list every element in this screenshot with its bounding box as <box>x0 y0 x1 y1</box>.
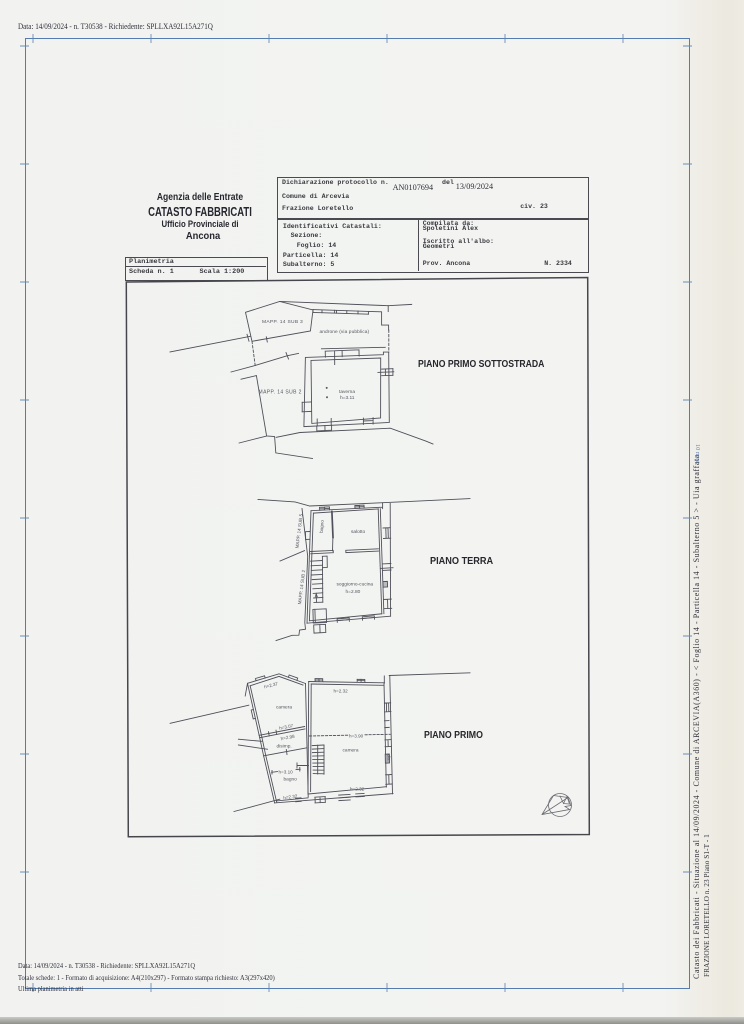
svg-text:androne (via pubblica): androne (via pubblica) <box>320 329 370 335</box>
svg-text:MAPP. 14 SUB 3: MAPP. 14 SUB 3 <box>262 319 303 325</box>
svg-text:MAPP. 14 SUB 5: MAPP. 14 SUB 5 <box>295 513 304 548</box>
svg-text:bagno: bagno <box>284 777 298 783</box>
svg-text:salotto: salotto <box>351 529 365 535</box>
svg-text:h=3.10: h=3.10 <box>279 770 294 775</box>
svg-text:MAPP. 14 SUB 2: MAPP. 14 SUB 2 <box>297 569 306 604</box>
svg-text:bagno: bagno <box>319 520 325 534</box>
svg-text:disimp.: disimp. <box>277 744 292 750</box>
svg-text:soggiorno-cucina: soggiorno-cucina <box>337 582 374 588</box>
svg-text:h=2.32: h=2.32 <box>334 689 349 694</box>
svg-text:h=2.32: h=2.32 <box>350 787 365 792</box>
svg-text:h=3.07: h=3.07 <box>279 723 294 731</box>
svg-text:taverna: taverna <box>339 389 355 395</box>
svg-text:h=3.11: h=3.11 <box>340 395 355 401</box>
svg-text:h=2.80: h=2.80 <box>346 589 361 595</box>
svg-text:h=2.37: h=2.37 <box>264 681 279 689</box>
svg-text:camera: camera <box>276 705 292 711</box>
svg-text:camera: camera <box>343 748 359 754</box>
svg-text:MAPP. 14 SUB 2: MAPP. 14 SUB 2 <box>259 390 302 396</box>
svg-text:dis.: dis. <box>387 754 392 761</box>
svg-text:h=2.98: h=2.98 <box>280 734 295 742</box>
svg-text:h=3.90: h=3.90 <box>349 733 364 738</box>
